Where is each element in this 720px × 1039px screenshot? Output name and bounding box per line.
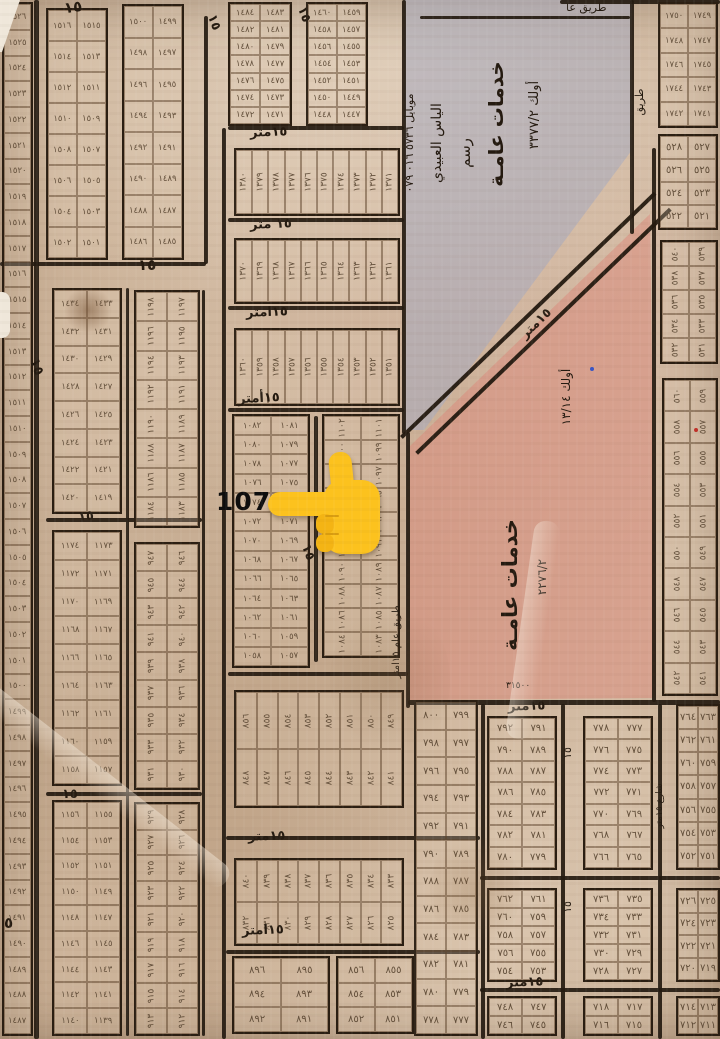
plot-number: ٧٦٩	[626, 809, 642, 820]
plot-cell: ١٣٥٤	[333, 330, 349, 404]
plot-number: ١٥١٧	[8, 243, 26, 253]
plot-cell: ٧١٨	[585, 998, 618, 1016]
plot-number: ٥٣٩	[697, 247, 707, 262]
plot-cell: ١٣٧٣	[349, 150, 365, 214]
road-line	[222, 128, 226, 1039]
plot-cell: ٧٤٨	[489, 998, 522, 1016]
road-line	[402, 0, 406, 434]
plot-cell: ١١٩٦	[136, 321, 167, 350]
plot-number: ١٣٧٢	[369, 172, 379, 192]
plot-cell: ١١٦٧	[87, 616, 120, 644]
plot-cell: ٩٣٧	[136, 680, 167, 707]
plot-number: ١٠٦٣	[280, 594, 298, 604]
plot-number: ٨٢٦	[366, 916, 376, 931]
plot-cell: ٨٤٧	[257, 749, 278, 806]
plot-number: ٧١٣	[700, 1002, 716, 1013]
plot-cell: ١١٦١	[87, 700, 120, 728]
plot-number: ١١٥٤	[61, 835, 80, 846]
plot-number: ٩٢٨	[177, 810, 187, 825]
plot-number: ١١٤٢	[61, 990, 79, 1000]
plot-number: ١٥٠٩	[8, 449, 27, 460]
plot-cell: ٥٢٤	[660, 182, 688, 205]
plot-number: ٥٣٥	[697, 295, 707, 310]
plot-cell: ١٤٤٨	[308, 107, 337, 124]
plot-number: ٥٣٦	[670, 295, 680, 310]
plot-cell: ٧٩٨	[416, 730, 446, 758]
plot-cell: ٥٥٩	[690, 380, 716, 411]
plot-number: ٧٥٥	[700, 804, 716, 815]
plot-cell: ٥٥٣	[690, 474, 716, 505]
plot-cell: ٧١٣	[698, 998, 718, 1016]
plot-number: ٩١٦	[177, 963, 187, 978]
plot-cell: ١١٧٢	[54, 560, 87, 588]
plot-cell: ١٤٩١	[153, 132, 182, 164]
plot-cell: ٧٥٩	[522, 908, 555, 926]
plot-number: ٧٧١	[626, 787, 642, 799]
plot-number: ١٣٧٩	[255, 172, 265, 191]
plot-cell: ١٥١٢	[4, 365, 31, 391]
plot-cell: ١١٦٦	[54, 644, 87, 672]
plot-number: ١٤٨٤	[236, 7, 255, 18]
street-label: ١٥	[63, 0, 83, 16]
plot-number: ١٣٧٧	[288, 172, 298, 192]
plot-cell: ٨٥١	[340, 692, 361, 749]
plot-cell: ١٤٢٥	[87, 401, 120, 429]
plot-cell: ١٥١٢	[48, 72, 77, 103]
plot-number: ١١٦٩	[94, 597, 113, 608]
plot-cell: ١١٧١	[87, 560, 120, 588]
plot-cell: ١١٤٤	[54, 957, 87, 983]
zone-services-top-text: الياس العبيدي	[430, 48, 444, 238]
plot-cell: ١١٦٤	[54, 672, 87, 700]
plot-number: ١١٥٩	[94, 737, 113, 748]
plot-number: ٥٢٥	[694, 165, 710, 176]
plot-cell: ١١٨٦	[136, 468, 167, 497]
plot-grid-b2: ١١٧٤١١٧٣١١٧٢١١٧١١١٧٠١١٦٩١١٦٨١١٦٧١١٦٦١١٦٥…	[52, 530, 122, 786]
plot-number: ٧١٢	[680, 1019, 696, 1031]
plot-number: ١٥٠٧	[8, 501, 26, 511]
plot-number: ٥٤١	[698, 671, 708, 686]
plot-number: ٥٢٨	[666, 142, 682, 154]
plot-number: ١٤٧٥	[266, 76, 284, 86]
plot-cell: ١٤٢٩	[87, 346, 120, 374]
plot-number: ٧٨٠	[497, 852, 513, 864]
plot-cell: ١٥٠٤	[48, 196, 77, 227]
plot-number: ٨٣٠	[283, 916, 293, 931]
plot-number: ٧٧٠	[593, 809, 609, 820]
plot-number: ٧٥٢	[680, 851, 696, 863]
plot-cell: ١٤٨٢	[230, 21, 260, 38]
plot-number: ٥٥٢	[672, 514, 682, 529]
plot-cell: ٨٥٦	[338, 958, 375, 983]
plot-number: ١١٩٧	[178, 297, 188, 316]
plot-cell: ٨٤١	[381, 749, 402, 806]
plot-number: ١٤٥١	[342, 76, 360, 86]
plot-number: ١٤٥٨	[313, 24, 332, 35]
plot-number: ٩٣٧	[146, 686, 156, 701]
plot-cell: ١٠٨٦	[324, 608, 361, 632]
plot-number: ١٣٦٧	[288, 261, 298, 281]
plot-number: ١٣٥٤	[336, 357, 346, 376]
plot-number: ٧٧٦	[593, 744, 609, 756]
plot-number: ٧٢٠	[680, 963, 696, 974]
plot-cell: ١٥٢٥	[4, 30, 31, 56]
plot-cell: ١٣٧٨	[268, 150, 284, 214]
plot-cell: ١٤٣٣	[87, 290, 120, 318]
plot-cell: ٩٤٥	[136, 571, 167, 598]
plot-number: ٨٤٤	[324, 770, 334, 785]
plot-number: ٧٤٧	[530, 1002, 546, 1013]
plot-number: ٧٣٦	[593, 893, 609, 905]
plot-number: ١١٦٣	[94, 681, 112, 691]
plot-number: ١٤٩٤	[129, 111, 147, 121]
plot-cell: ١٤٥٥	[337, 38, 366, 55]
plot-number: ١٤٥٥	[342, 42, 361, 53]
plot-cell: ١٣٧٧	[285, 150, 301, 214]
plot-number: ٧٢٨	[593, 965, 609, 976]
plot-cell: ١٥٠٥	[77, 165, 106, 196]
plot-cell: ١٣٨٠	[236, 150, 252, 214]
plot-number: ٧٨١	[453, 959, 469, 970]
zone-services-top-text: خدمات عامـة	[486, 28, 506, 220]
plot-cell: ١١٣٩	[87, 1008, 120, 1034]
plot-number: ١٣٦٢	[369, 261, 379, 281]
plot-cell: ٩٤٠	[167, 625, 198, 652]
plot-cell: ٧٧١	[618, 782, 651, 803]
plot-number: ٧٧٣	[626, 766, 642, 778]
plot-number: ١٠٦٠	[243, 632, 262, 643]
plot-cell: ١٣٦٣	[349, 240, 365, 302]
plot-cell: ٩٤٤	[167, 571, 198, 598]
plot-cell: ٨٣٤	[361, 860, 382, 902]
plot-cell: ٥٢٧	[688, 136, 716, 159]
plot-number: ١٤١٩	[94, 493, 113, 504]
plot-number: ١٤٦٠	[313, 7, 332, 18]
plot-number: ٧٧٧	[626, 723, 642, 734]
plot-cell: ١٠٦٤	[234, 589, 271, 608]
plot-number: ٧٨٢	[423, 959, 439, 970]
plot-cell: ٧٥٨	[678, 775, 698, 798]
plot-number: ٧٥٥	[530, 947, 546, 959]
plot-cell: ١١٥٥	[87, 802, 120, 828]
plot-number: ٨٥٢	[348, 1014, 364, 1025]
plot-number: ٧٧٩	[530, 852, 546, 863]
plot-cell: ١٤٩٠	[124, 164, 153, 196]
plot-number: ٨٤٠	[241, 874, 251, 889]
plot-cell: ٥٤٢	[664, 663, 690, 694]
plot-number: ١٤٨٩	[158, 174, 176, 184]
road-line	[406, 432, 410, 708]
plot-number: ٥٤٥	[698, 608, 708, 623]
plot-number: ٩٢١	[146, 912, 156, 927]
plot-number: ٥٢٢	[666, 211, 682, 222]
plot-number: ٧٩٣	[453, 793, 469, 805]
plot-number: ٧٣٣	[626, 911, 642, 922]
plot-cell: ١٤٣١	[87, 318, 120, 346]
plot-number: ٧٣٠	[593, 948, 609, 959]
plot-cell: ٧٢٣	[698, 913, 718, 936]
plot-cell: ١٧٤٧	[688, 28, 716, 52]
plot-number: ١٠٧٩	[280, 440, 298, 450]
plot-cell: ٥٥٥	[690, 443, 716, 474]
plot-cell: ٧٦٠	[489, 908, 522, 926]
plot-cell: ٥٣٩	[689, 242, 716, 266]
plot-number: ١١٤٣	[94, 964, 112, 974]
plot-number: ٧١٦	[593, 1019, 609, 1031]
plot-cell: ٧٩١	[522, 718, 555, 739]
plot-number: ٧٨٣	[530, 809, 546, 820]
plot-cell: ١٤٥٤	[308, 55, 337, 72]
plot-cell: ١٠٦١	[271, 608, 308, 627]
plot-cell: ١٠٨١	[271, 416, 308, 435]
plot-number: ١٥٢٠	[8, 166, 26, 176]
plot-number: ١٤٩٠	[129, 174, 148, 185]
plot-number: ٨٥٤	[283, 713, 293, 728]
plot-number: ١١٩١	[178, 385, 188, 405]
plot-cell: ٧٦٢	[678, 729, 698, 752]
plot-number: ١٤٩٤	[8, 836, 27, 847]
plot-number: ٧٧٨	[423, 1014, 439, 1026]
plot-number: ١١٧٠	[61, 597, 79, 607]
plot-number: ١٣٦٣	[353, 261, 363, 281]
plot-cell: ٨٩٤	[234, 983, 281, 1008]
plot-number: ٨٤٦	[283, 770, 293, 785]
plot-cell: ٨٥٢	[319, 692, 340, 749]
plot-cell: ٨٥٥	[257, 692, 278, 749]
plot-number: ١٤٢١	[94, 465, 112, 475]
plot-number: ٥٤٢	[672, 671, 682, 686]
plot-number: ١٠٦١	[280, 613, 298, 623]
plot-cell: ٧٢١	[698, 935, 718, 958]
plot-cell: ١٣٧٥	[317, 150, 333, 214]
plot-cell: ١١٠١	[361, 416, 398, 440]
plot-number: ١٠٧٢	[243, 516, 262, 527]
plot-number: ١٤٤٨	[313, 110, 332, 121]
plot-cell: ١٠٥٩	[271, 628, 308, 647]
plot-number: ٩١٤	[177, 988, 187, 1003]
plot-number: ١١٩٨	[147, 297, 157, 317]
plot-number: ٧٩٠	[497, 744, 513, 756]
plot-number: ١٧٤٧	[693, 35, 711, 45]
plot-number: ٧٢٥	[700, 896, 716, 907]
plot-cell: ٨٥٤	[338, 983, 375, 1008]
plot-grid-m8b: ٨٥٦٨٥٥٨٥٤٨٥٣٨٥٢٨٥١	[336, 956, 414, 1034]
plot-cell: ٩٤٣	[136, 598, 167, 625]
plot-cell: ١٥١٩	[4, 184, 31, 210]
plot-cell: ١٤٧٢	[230, 107, 260, 124]
plot-number: ١١٤١	[94, 990, 113, 1001]
plot-cell: ١٤٩٩	[4, 699, 31, 725]
plot-number: ١٥١١	[8, 398, 27, 409]
plot-cell: ١٠٦٣	[271, 589, 308, 608]
plot-number: ٩٢٠	[177, 912, 187, 927]
plot-cell: ١١٨٣	[167, 497, 198, 526]
plot-number: ٩٤٧	[146, 550, 156, 565]
plot-number: ١٤٧١	[266, 110, 284, 120]
plot-number: ١١٥٧	[94, 765, 113, 776]
plot-number: ٩٣٨	[177, 659, 187, 674]
plot-number: ١٤٣٤	[61, 299, 80, 310]
ink-mark	[694, 428, 698, 432]
plot-number: ٧١٨	[593, 1001, 609, 1013]
plot-number: ١٣٧٣	[353, 172, 363, 192]
plot-cell: ٩٢٣	[136, 881, 167, 907]
street-label: ١٥	[562, 738, 573, 768]
plot-cell: ٩٢٠	[167, 906, 198, 932]
plot-number: ١٠٨٧	[375, 586, 385, 606]
plot-number: ٩٣١	[146, 767, 156, 782]
plot-grid-r4: ٥٦٠٥٥٩٥٥٨٥٥٧٥٥٦٥٥٥٥٥٤٥٥٣٥٥٢٥٥١٥٥٠٥٤٩٥٤٨٥…	[662, 378, 718, 696]
plot-number: ١٧٤٨	[665, 35, 684, 46]
plot-cell: ١٤٨٣	[260, 4, 290, 21]
plot-number: ١٤٣١	[94, 326, 112, 336]
plot-number: ١٥٢٦	[8, 12, 27, 23]
plot-number: ٧١٤	[680, 1001, 696, 1013]
plot-number: ١١٦٧	[94, 625, 113, 636]
plot-cell: ١٤٥٨	[308, 21, 337, 38]
plot-grid-r3: ٥٤٠٥٣٩٥٣٨٥٣٧٥٣٦٥٣٥٥٣٤٥٣٣٥٣٢٥٣١	[660, 240, 718, 364]
plot-cell: ١٤٩٦	[4, 777, 31, 803]
plot-number: ٥٥١	[698, 514, 708, 529]
plot-number: ٧٩١	[530, 723, 546, 734]
plot-cell: ٩٤٢	[167, 598, 198, 625]
plot-number: ٧٧٥	[626, 744, 642, 755]
plot-cell: ١٥٢٢	[4, 107, 31, 133]
plot-cell: ١٤٤٧	[337, 107, 366, 124]
plot-number: ٧١٩	[700, 963, 716, 975]
plot-number: ٨٩٦	[249, 965, 265, 977]
plot-cell: ١٠٦٦	[234, 570, 271, 589]
plot-grid-a5: ١٤٦٠١٤٥٩١٤٥٨١٤٥٧١٤٥٦١٤٥٥١٤٥٤١٤٥٣١٤٥٢١٤٥١…	[306, 2, 368, 126]
plot-number: ٧٣٥	[626, 894, 642, 905]
plot-cell: ٧٤٥	[522, 1016, 555, 1034]
plot-number: ١١٧٣	[94, 541, 112, 551]
plot-cell: ١٠٦٥	[271, 570, 308, 589]
street-label: ١٥امتر	[246, 305, 288, 319]
plot-cell: ٨٢٧	[340, 902, 361, 944]
plot-number: ١٣٥٥	[320, 357, 330, 377]
plot-cell: ١٤٨٩	[153, 164, 182, 196]
plot-number: ١٣٥٢	[369, 357, 379, 377]
plot-cell: ١١٥٠	[54, 879, 87, 905]
plot-number: ٧٨٣	[453, 931, 469, 943]
plot-cell: ٨٩٥	[281, 958, 328, 983]
plot-cell: ٧٨٠	[489, 847, 522, 868]
plot-cell: ٨٣٣	[381, 860, 402, 902]
plot-cell: ١٣٧١	[382, 150, 398, 214]
plot-cell: ١٤٩٤	[4, 828, 31, 854]
plot-number: ١٥١٨	[8, 218, 26, 228]
road-line	[480, 876, 720, 880]
plot-cell: ٧٧٢	[585, 782, 618, 803]
plot-number: ١٣٦٤	[336, 261, 346, 280]
plot-number: ١٤٢٣	[94, 438, 112, 448]
plot-grid-br5: ٧٣٦٧٣٥٧٣٤٧٣٣٧٣٢٧٣١٧٣٠٧٢٩٧٢٨٧٢٧	[583, 888, 653, 982]
plot-cell: ١٥٠٧	[4, 493, 31, 519]
plot-cell: ١٤٩٩	[153, 6, 182, 38]
plot-cell: ٧٢٥	[698, 890, 718, 913]
plot-cell: ٥٤٠	[662, 242, 689, 266]
plot-cell: ٨٤٠	[236, 860, 257, 902]
plot-number: ٨٥٣	[304, 713, 314, 728]
plot-cell: ٧٨١	[522, 825, 555, 846]
plot-cell: ٨٣٨	[278, 860, 299, 902]
pointing-finger-icon[interactable]	[266, 452, 386, 566]
plot-number: ٧٧٢	[593, 787, 609, 798]
plot-cell: ١٤٣٤	[54, 290, 87, 318]
plot-cell: ٧٣٣	[618, 908, 651, 926]
plot-number: ٧٩٦	[423, 766, 439, 777]
plot-cell: ١١٦٣	[87, 672, 120, 700]
plot-number: ٧٦٥	[626, 852, 642, 863]
plot-cell: ١٤٣٢	[54, 318, 87, 346]
plot-number: ٨٤١	[387, 770, 397, 785]
plot-number: ١١٨٣	[178, 502, 188, 522]
plot-number: ١٥٠١	[8, 655, 27, 666]
plot-number: ٥٣٨	[670, 271, 680, 286]
plot-cell: ١١٤٥	[87, 931, 120, 957]
plot-number: ٩٢٩	[146, 809, 156, 824]
plot-number: ٧١١	[700, 1019, 716, 1030]
plot-cell: ١٥٢١	[4, 133, 31, 159]
plot-number: ١٥٠٦	[53, 175, 72, 186]
plot-cell: ٧٥٧	[698, 775, 718, 798]
plot-cell: ٩٣٠	[167, 761, 198, 788]
plot-cell: ٨٣٧	[298, 860, 319, 902]
plot-number: ٧٧٨	[593, 723, 609, 735]
plot-number: ٧٩٧	[453, 738, 469, 749]
plot-cell: ١٣٧٢	[366, 150, 382, 214]
plot-number: ١١٤٩	[94, 887, 113, 898]
plot-number: ١٧٤٦	[665, 60, 683, 70]
plot-number: ١٥٠٦	[8, 527, 27, 538]
plot-number: ١٥٠٢	[53, 237, 71, 247]
plot-grid-br3: ٧٦٤٧٦٣٧٦٢٧٦١٧٦٠٧٥٩٧٥٨٧٥٧٧٥٦٧٥٥٧٥٤٧٥٣٧٥٢٧…	[676, 704, 720, 870]
plot-number: ١٤٨٣	[266, 8, 284, 18]
plot-number: ١٠٥٧	[280, 651, 299, 662]
plot-cell: ١١٤٣	[87, 957, 120, 983]
plot-number: ١٣٧٨	[272, 172, 282, 192]
plot-cell: ٩٢٤	[167, 855, 198, 881]
plot-number: ١٣٥١	[385, 357, 395, 377]
plot-cell: ١٥١٧	[4, 236, 31, 262]
plot-cell: ٨٤٣	[340, 749, 361, 806]
plot-cell: ١٤٢١	[87, 457, 120, 485]
plot-number: ١١٩٢	[147, 385, 157, 404]
plot-number: ١١٦٨	[61, 625, 79, 635]
plot-cell: ١٥١٠	[48, 103, 77, 134]
plot-cell: ٧٥١	[698, 845, 718, 868]
plot-number: ١٠٨٤	[338, 634, 348, 654]
plot-number: ١١٨٩	[178, 414, 188, 434]
plot-number: ١٤٥٢	[313, 76, 331, 86]
plot-number: ١٣٦٦	[304, 261, 314, 281]
plot-number: ١٤٢٢	[61, 465, 80, 476]
plot-number: ٩٤٤	[177, 577, 187, 592]
plot-cell: ١٤٧٦	[230, 73, 260, 90]
plot-number: ٧٥٧	[530, 929, 546, 941]
plot-number: ٧٩٢	[423, 821, 439, 832]
plot-cell: ٧٩٤	[416, 785, 446, 813]
plot-cell: ١٧٤٥	[688, 53, 716, 77]
plot-cell: ٨٣٦	[319, 860, 340, 902]
plot-cell: ١٤٣٠	[54, 346, 87, 374]
plot-number: ١١٦٥	[94, 653, 112, 663]
plot-number: ١٥٢٤	[8, 63, 27, 74]
plot-number: ٧٦٤	[680, 712, 696, 724]
plot-cell: ٧٤٦	[489, 1016, 522, 1034]
plot-cell: ١١٠٢	[324, 416, 361, 440]
